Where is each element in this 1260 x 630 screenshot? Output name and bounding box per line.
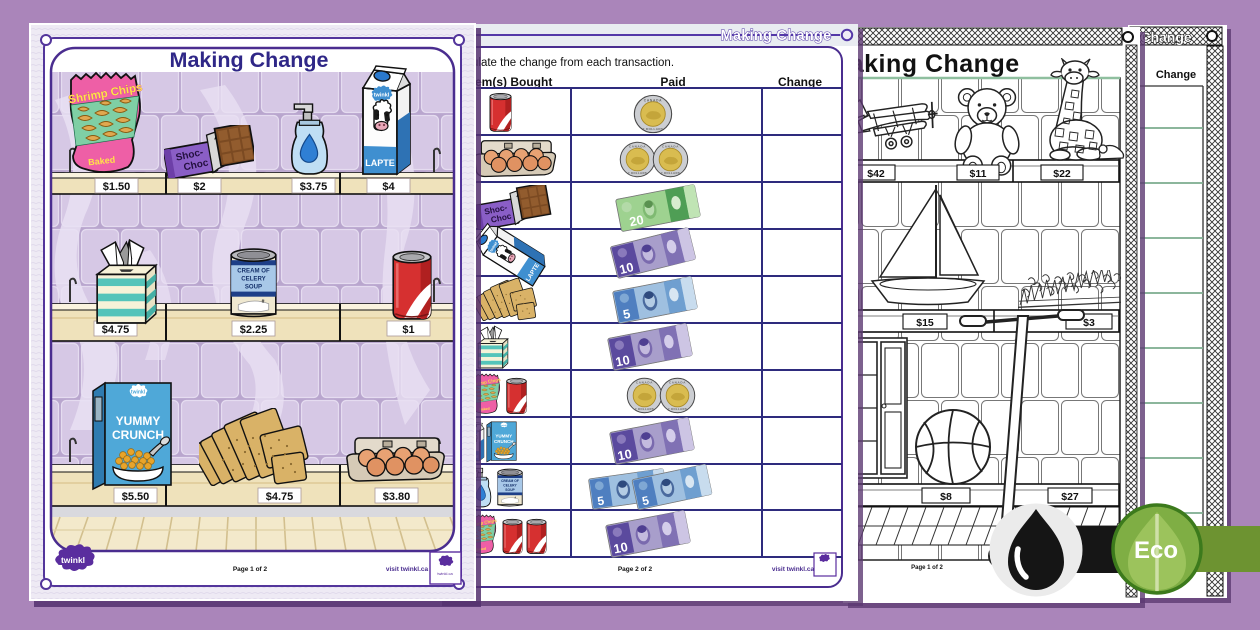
svg-text:Change: Change bbox=[778, 75, 822, 89]
svg-text:Calculate the change from each: Calculate the change from each transacti… bbox=[449, 57, 674, 69]
svg-text:$15: $15 bbox=[916, 317, 934, 329]
svg-text:$1.50: $1.50 bbox=[103, 181, 131, 193]
svg-text:Change: Change bbox=[1140, 29, 1192, 45]
svg-text:Making Change: Making Change bbox=[170, 48, 329, 72]
svg-text:$3.75: $3.75 bbox=[300, 181, 328, 193]
svg-text:twinkl.ca: twinkl.ca bbox=[437, 571, 453, 576]
svg-text:$5.50: $5.50 bbox=[122, 491, 150, 503]
svg-text:$4: $4 bbox=[382, 181, 395, 193]
svg-text:$4.75: $4.75 bbox=[102, 324, 130, 336]
svg-text:$3: $3 bbox=[1083, 317, 1095, 329]
svg-text:visit twinkl.ca: visit twinkl.ca bbox=[386, 566, 429, 573]
svg-text:$4.75: $4.75 bbox=[266, 491, 294, 503]
svg-text:$27: $27 bbox=[1061, 491, 1079, 503]
svg-text:$11: $11 bbox=[970, 168, 987, 180]
svg-text:Page 1 of 2: Page 1 of 2 bbox=[233, 566, 268, 573]
svg-text:$2.25: $2.25 bbox=[240, 324, 268, 336]
svg-text:$22: $22 bbox=[1053, 168, 1071, 180]
svg-text:Change: Change bbox=[1156, 69, 1196, 81]
svg-text:$3.80: $3.80 bbox=[383, 491, 411, 503]
svg-text:Making Change: Making Change bbox=[720, 28, 831, 44]
svg-text:$42: $42 bbox=[867, 168, 885, 180]
svg-text:$8: $8 bbox=[940, 491, 952, 503]
svg-text:$1: $1 bbox=[402, 324, 414, 336]
svg-text:$2: $2 bbox=[193, 181, 205, 193]
svg-text:Page 2 of 2: Page 2 of 2 bbox=[618, 566, 653, 573]
svg-text:Eco: Eco bbox=[1134, 537, 1178, 564]
svg-text:visit twinkl.ca: visit twinkl.ca bbox=[772, 566, 815, 573]
svg-text:twinkl: twinkl bbox=[61, 555, 85, 565]
svg-text:Paid: Paid bbox=[660, 75, 685, 89]
svg-text:Page 1 of 2: Page 1 of 2 bbox=[911, 565, 943, 571]
